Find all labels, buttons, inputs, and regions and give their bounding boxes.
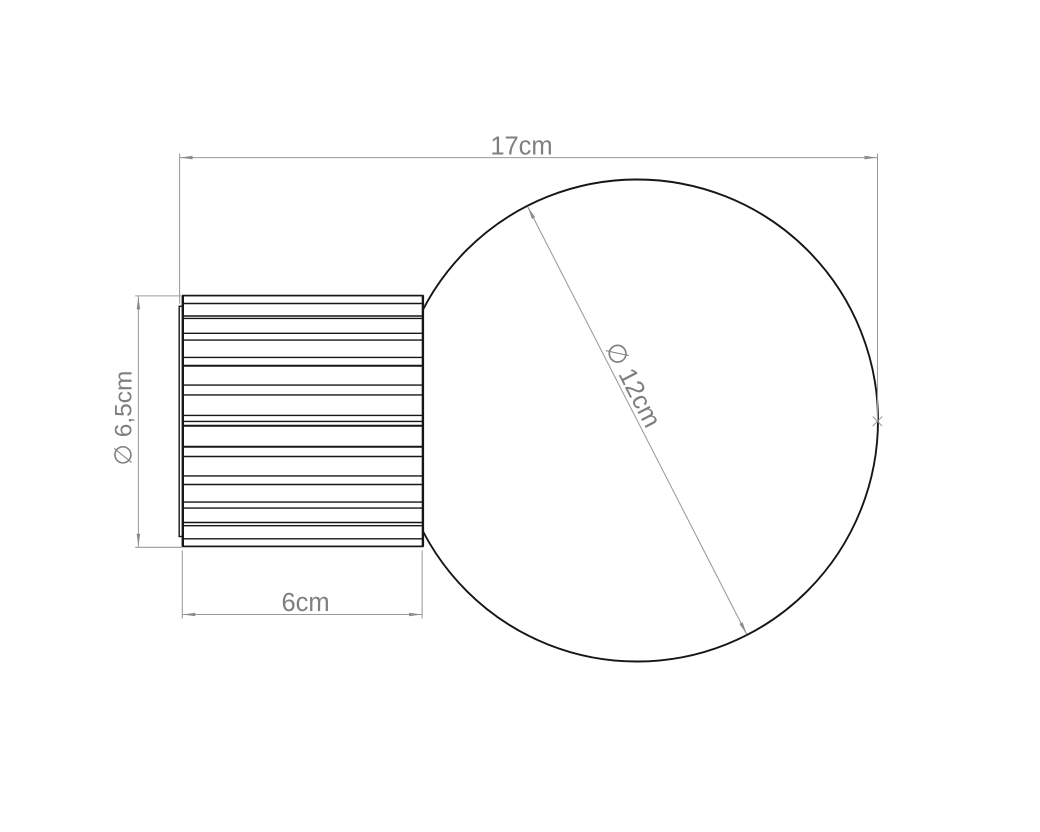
svg-text:∅ 6,5cm: ∅ 6,5cm [111,371,138,466]
svg-text:6cm: 6cm [282,589,330,617]
svg-text:17cm: 17cm [490,132,552,160]
